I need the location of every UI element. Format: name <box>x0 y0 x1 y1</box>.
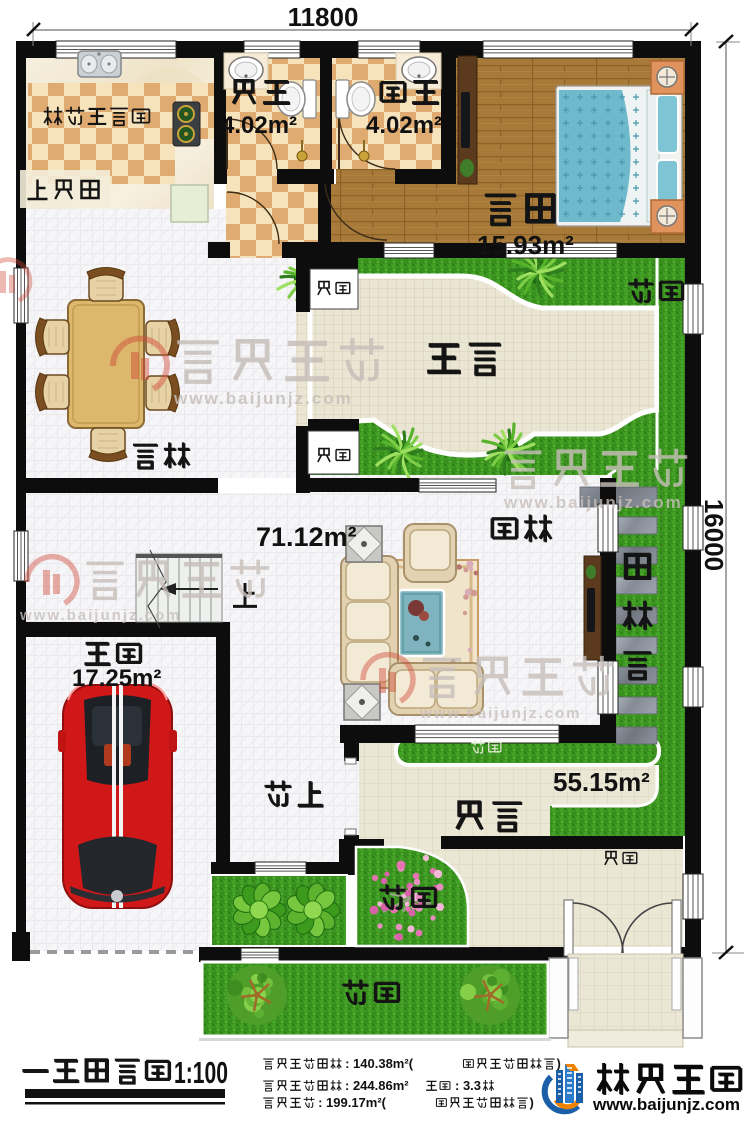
svg-text:4.02m²: 4.02m² <box>366 112 442 139</box>
svg-text:www.baijunjz.com: www.baijunjz.com <box>592 1095 740 1114</box>
svg-text:1:100: 1:100 <box>174 1055 228 1090</box>
svg-text:17.25m²: 17.25m² <box>72 665 161 692</box>
svg-text:15.93m²: 15.93m² <box>477 230 574 260</box>
svg-text:16000: 16000 <box>699 499 729 571</box>
svg-text:4.02m²: 4.02m² <box>221 112 297 139</box>
svg-text:55.15m²: 55.15m² <box>553 767 650 797</box>
svg-text:): ) <box>530 1095 534 1110</box>
svg-text:: 140.38m²(: : 140.38m²( <box>345 1056 414 1071</box>
svg-text:): ) <box>557 1056 561 1071</box>
svg-text:71.12m²: 71.12m² <box>256 522 357 552</box>
svg-text:www.baijunjz.com: www.baijunjz.com <box>19 607 181 624</box>
svg-text:: 244.86m²: : 244.86m² <box>345 1078 409 1093</box>
svg-text:11800: 11800 <box>288 2 359 32</box>
svg-text:www.baijunjz.com: www.baijunjz.com <box>419 705 581 722</box>
svg-text:: 199.17m²(: : 199.17m²( <box>318 1095 387 1110</box>
svg-text:: 3.3: : 3.3 <box>455 1078 481 1093</box>
svg-text:www.baijunjz.com: www.baijunjz.com <box>173 389 353 408</box>
svg-text:www.baijunjz.com: www.baijunjz.com <box>503 493 683 512</box>
